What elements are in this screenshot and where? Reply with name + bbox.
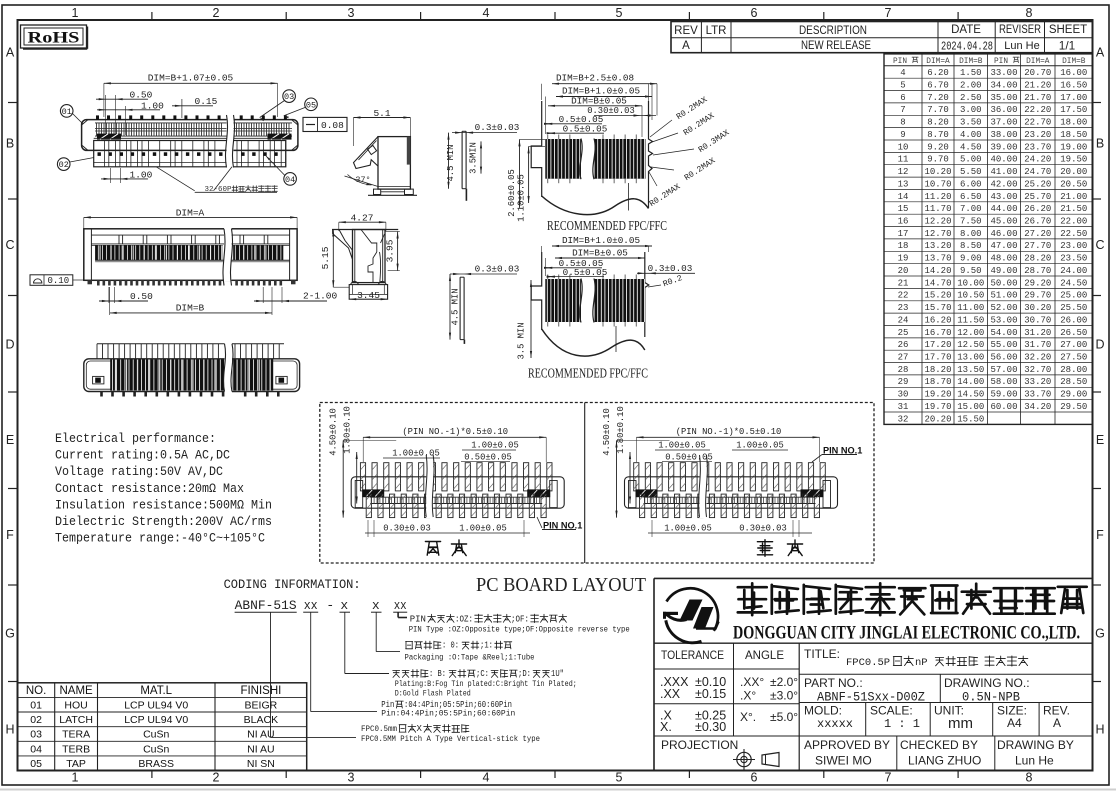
svg-text:18.20: 18.20 [924, 365, 951, 375]
svg-text:41.00: 41.00 [990, 167, 1017, 177]
svg-text:22.50: 22.50 [1060, 229, 1087, 239]
svg-text:15: 15 [898, 204, 909, 214]
svg-text:42.00: 42.00 [990, 179, 1017, 189]
svg-text:C: C [1095, 238, 1104, 252]
svg-text:BLACK: BLACK [244, 714, 278, 726]
svg-text:TERA: TERA [62, 729, 90, 741]
svg-text:29.20: 29.20 [1024, 278, 1051, 288]
svg-text:3.5MIN: 3.5MIN [469, 142, 479, 174]
svg-text:49.00: 49.00 [990, 266, 1017, 276]
svg-text:19.70: 19.70 [924, 402, 951, 412]
svg-text:27.20: 27.20 [1024, 229, 1051, 239]
svg-text:DIM=A: DIM=A [1026, 58, 1050, 66]
svg-text:20.00: 20.00 [1060, 167, 1087, 177]
svg-text:7.50: 7.50 [960, 217, 982, 227]
svg-text:9.70: 9.70 [927, 155, 949, 165]
svg-text:24.50: 24.50 [1060, 278, 1087, 288]
svg-text:11.70: 11.70 [924, 204, 951, 214]
svg-text:LCP UL94 V0: LCP UL94 V0 [124, 699, 188, 711]
svg-text:±3.0°: ±3.0° [770, 689, 798, 703]
svg-text:NI AU: NI AU [247, 743, 274, 755]
svg-text:13.70: 13.70 [924, 254, 951, 264]
svg-text:32.70: 32.70 [1024, 365, 1051, 375]
svg-text:SCALE:: SCALE: [870, 704, 913, 718]
svg-text:39.00: 39.00 [990, 142, 1017, 152]
svg-text:13.00: 13.00 [957, 353, 984, 363]
svg-text:33.00: 33.00 [990, 68, 1017, 78]
svg-text:Pin:04:4Pin;05:5Pin;60:60Pin: Pin:04:4Pin;05:5Pin;60:60Pin [381, 708, 515, 718]
svg-text:TERB: TERB [62, 743, 90, 755]
svg-text:46.00: 46.00 [990, 229, 1017, 239]
svg-text:4.50±0.10: 4.50±0.10 [602, 408, 612, 456]
svg-text:32-60P: 32-60P [205, 186, 233, 194]
svg-text:Electrical performance:: Electrical performance: [55, 432, 216, 446]
svg-text:0.50: 0.50 [130, 291, 153, 302]
svg-text:LIANG ZHUO: LIANG ZHUO [908, 754, 981, 768]
svg-text:CODING INFORMATION:: CODING INFORMATION: [224, 578, 361, 592]
svg-text:32: 32 [898, 414, 909, 424]
svg-text:PART NO.:: PART NO.: [804, 676, 863, 690]
svg-text:12: 12 [898, 167, 909, 177]
svg-text:1.80±0.10: 1.80±0.10 [616, 406, 626, 454]
svg-text:10: 10 [898, 142, 909, 152]
svg-text:1.80±0.10: 1.80±0.10 [343, 406, 353, 454]
svg-text:NAME: NAME [59, 685, 93, 697]
svg-text:PIN: PIN [994, 58, 1008, 66]
svg-text:xxxxx: xxxxx [817, 717, 853, 731]
svg-text:DONGGUAN CITY JINGLAI ELECTRON: DONGGUAN CITY JINGLAI ELECTRONIC CO.,LTD… [733, 623, 1080, 644]
svg-text:16.70: 16.70 [924, 328, 951, 338]
svg-text:NO.: NO. [26, 685, 46, 697]
svg-text:Current rating:0.5A AC,DC: Current rating:0.5A AC,DC [55, 449, 230, 463]
svg-text:18.50: 18.50 [1060, 130, 1087, 140]
svg-text:27.00: 27.00 [1060, 340, 1087, 350]
svg-text:10.70: 10.70 [924, 179, 951, 189]
svg-text:2.60±0.05: 2.60±0.05 [507, 169, 517, 217]
svg-text:04: 04 [285, 175, 295, 185]
svg-text:H: H [5, 723, 14, 737]
svg-text:HOU: HOU [64, 699, 87, 711]
svg-text:Temperature range:-40°C~+105°C: Temperature range:-40°C~+105°C [55, 532, 265, 546]
svg-text:PIN: PIN [893, 58, 907, 66]
svg-text:SIWEI MO: SIWEI MO [815, 754, 872, 768]
svg-text:29.70: 29.70 [1024, 291, 1051, 301]
svg-text:5.00: 5.00 [960, 155, 982, 165]
svg-text:1.00±0.05: 1.00±0.05 [658, 441, 706, 451]
svg-text:28.20: 28.20 [1024, 254, 1051, 264]
svg-text:Voltage rating:50V AV,DC: Voltage rating:50V AV,DC [55, 465, 223, 479]
svg-text:28.50: 28.50 [1060, 377, 1087, 387]
svg-text:43.00: 43.00 [990, 192, 1017, 202]
svg-text:28: 28 [898, 365, 909, 375]
svg-text:x: x [340, 598, 348, 613]
svg-text:0.50±0.05: 0.50±0.05 [665, 452, 713, 462]
svg-text:20.20: 20.20 [924, 414, 951, 424]
svg-text:26: 26 [898, 340, 909, 350]
svg-text:A: A [6, 46, 15, 60]
svg-text:20.50: 20.50 [1060, 179, 1087, 189]
svg-text:FPC0.5P: FPC0.5P [846, 657, 890, 669]
svg-text:: B:: : B: [429, 669, 446, 679]
svg-text:13.20: 13.20 [924, 241, 951, 251]
svg-text:CuSn: CuSn [143, 729, 169, 741]
svg-text:G: G [5, 627, 15, 641]
svg-text:26.50: 26.50 [1060, 328, 1087, 338]
svg-text:16.50: 16.50 [1060, 81, 1087, 91]
svg-text:Packaging :O:Tape &Reel;1:Tube: Packaging :O:Tape &Reel;1:Tube [405, 652, 535, 662]
svg-text:1.00: 1.00 [130, 169, 153, 180]
svg-text:±5.0°: ±5.0° [770, 710, 798, 724]
svg-text:27: 27 [898, 353, 909, 363]
svg-text:10.00: 10.00 [957, 278, 984, 288]
svg-text:35.00: 35.00 [990, 93, 1017, 103]
svg-text:.XX: .XX [660, 687, 681, 701]
svg-text:26.20: 26.20 [1024, 204, 1051, 214]
svg-text:1: 1 [72, 6, 79, 20]
svg-text:FPC0.5mm: FPC0.5mm [361, 724, 397, 734]
svg-text:27.50: 27.50 [1060, 353, 1087, 363]
svg-text:: 0:: : 0: [442, 641, 459, 651]
svg-text:48.00: 48.00 [990, 254, 1017, 264]
svg-text:59.00: 59.00 [990, 390, 1017, 400]
svg-text:PIN Type :OZ:Opposite type;OF:: PIN Type :OZ:Opposite type;OF:Opposite r… [409, 624, 630, 634]
svg-text:PIN: PIN [410, 615, 426, 625]
svg-text:DIM=A: DIM=A [926, 58, 950, 66]
svg-text:23: 23 [898, 303, 909, 313]
svg-text:0.08: 0.08 [321, 120, 344, 131]
svg-text:A: A [1096, 46, 1105, 60]
svg-text:05: 05 [30, 758, 42, 770]
svg-text:LCP UL94 V0: LCP UL94 V0 [124, 714, 188, 726]
svg-text:BRASS: BRASS [138, 758, 174, 770]
svg-text:26.00: 26.00 [1060, 315, 1087, 325]
svg-text:E: E [1096, 433, 1104, 447]
svg-text:6.50: 6.50 [960, 192, 982, 202]
svg-text:;OF:: ;OF: [511, 615, 529, 625]
svg-text:3: 3 [348, 6, 355, 20]
svg-text:8.20: 8.20 [927, 118, 949, 128]
svg-text:1.00±0.05: 1.00±0.05 [392, 448, 440, 458]
svg-text:CHECKED BY: CHECKED BY [900, 738, 978, 752]
svg-text:57.00: 57.00 [990, 365, 1017, 375]
svg-text:LATCH: LATCH [59, 714, 93, 726]
svg-text:8.50: 8.50 [960, 241, 982, 251]
svg-text:A4: A4 [1007, 716, 1022, 730]
svg-text:0.10: 0.10 [48, 276, 70, 286]
svg-text:SHEET: SHEET [1049, 24, 1087, 36]
svg-text:1.00±0.05: 1.00±0.05 [736, 441, 784, 451]
svg-text:4: 4 [483, 6, 490, 20]
svg-text:9.20: 9.20 [927, 142, 949, 152]
svg-text:9: 9 [900, 130, 905, 140]
svg-text:0.3±0.03: 0.3±0.03 [475, 264, 520, 275]
svg-text:47.00: 47.00 [990, 241, 1017, 251]
svg-text:nP: nP [915, 657, 928, 669]
svg-text:PIN NO.1: PIN NO.1 [543, 521, 582, 531]
svg-text:30.20: 30.20 [1024, 303, 1051, 313]
svg-text:25.20: 25.20 [1024, 179, 1051, 189]
svg-text:A: A [1053, 716, 1061, 730]
svg-text:22.00: 22.00 [1060, 217, 1087, 227]
svg-text:NEW RELEASE: NEW RELEASE [801, 40, 871, 52]
svg-text:APPROVED BY: APPROVED BY [804, 738, 890, 752]
svg-text:;C:: ;C: [476, 669, 489, 679]
svg-text:8: 8 [1026, 771, 1033, 785]
svg-text:±2.0°: ±2.0° [770, 675, 798, 689]
svg-text:6: 6 [751, 771, 758, 785]
svg-text:.X°: .X° [740, 689, 756, 703]
svg-text:X: X [417, 724, 423, 734]
svg-text:4.5 MIN: 4.5 MIN [446, 145, 456, 182]
svg-text:16.00: 16.00 [1060, 68, 1087, 78]
svg-text:36.00: 36.00 [990, 105, 1017, 115]
svg-text:20.70: 20.70 [1024, 68, 1051, 78]
svg-text:DIM=B+1.0±0.05: DIM=B+1.0±0.05 [562, 235, 640, 246]
svg-text:8: 8 [1026, 6, 1033, 20]
svg-text:Plating:B:Fog Tin plated:C:Bri: Plating:B:Fog Tin plated:C:Bright Tin Pl… [395, 679, 577, 689]
svg-text:3.45: 3.45 [357, 290, 380, 301]
svg-text:58.00: 58.00 [990, 377, 1017, 387]
svg-text:18: 18 [898, 241, 909, 251]
svg-text:27.70: 27.70 [1024, 241, 1051, 251]
svg-text:01: 01 [30, 699, 42, 711]
svg-text:4.5 MIN: 4.5 MIN [451, 289, 461, 326]
svg-text:14.20: 14.20 [924, 266, 951, 276]
svg-text:7.00: 7.00 [960, 204, 982, 214]
svg-text:BEIGR: BEIGR [245, 699, 278, 711]
svg-text:02: 02 [59, 160, 69, 170]
svg-text:0.3±0.03: 0.3±0.03 [475, 122, 520, 133]
svg-text:PC BOARD LAYOUT: PC BOARD LAYOUT [476, 574, 646, 596]
svg-text:1 : 1: 1 : 1 [884, 717, 920, 731]
svg-text:11: 11 [898, 155, 909, 165]
svg-text:56.00: 56.00 [990, 353, 1017, 363]
svg-text:3.95: 3.95 [385, 239, 396, 262]
svg-text:26.70: 26.70 [1024, 217, 1051, 227]
svg-text:19.50: 19.50 [1060, 155, 1087, 165]
svg-text:25.00: 25.00 [1060, 291, 1087, 301]
svg-text:33.70: 33.70 [1024, 390, 1051, 400]
svg-text:21.70: 21.70 [1024, 93, 1051, 103]
svg-text:51.00: 51.00 [990, 291, 1017, 301]
svg-text:X°.: X°. [740, 710, 756, 724]
svg-text:7.70: 7.70 [927, 105, 949, 115]
svg-text:1.00±0.05: 1.00±0.05 [664, 523, 712, 533]
svg-text:0.30±0.03: 0.30±0.03 [383, 523, 431, 533]
svg-text:DATE: DATE [951, 24, 981, 36]
svg-text:ABNF-51S: ABNF-51S [235, 598, 297, 613]
svg-text:2: 2 [213, 6, 220, 20]
svg-text:4: 4 [483, 771, 490, 785]
svg-text:D:Gold Flash Plated: D:Gold Flash Plated [395, 689, 471, 699]
svg-text:30: 30 [898, 390, 909, 400]
svg-text:18.00: 18.00 [1060, 118, 1087, 128]
svg-text:6.20: 6.20 [927, 68, 949, 78]
svg-text:DRAWING BY: DRAWING BY [997, 738, 1074, 752]
svg-text:RECOMMENDED FPC/FFC: RECOMMENDED FPC/FFC [547, 218, 667, 233]
svg-text:1.00: 1.00 [141, 100, 164, 111]
svg-text:20: 20 [898, 266, 909, 276]
svg-text:±0.15: ±0.15 [695, 687, 726, 701]
svg-text:24: 24 [898, 315, 909, 325]
svg-text:TITLE:: TITLE: [804, 647, 840, 661]
svg-text:PROJECTION: PROJECTION [661, 738, 738, 752]
svg-text:25.50: 25.50 [1060, 303, 1087, 313]
svg-text:55.00: 55.00 [990, 340, 1017, 350]
svg-text:10.20: 10.20 [924, 167, 951, 177]
svg-text:22: 22 [898, 291, 909, 301]
svg-text:29.00: 29.00 [1060, 390, 1087, 400]
svg-text:19: 19 [898, 254, 909, 264]
svg-text:17.20: 17.20 [924, 340, 951, 350]
svg-text:2.50: 2.50 [960, 93, 982, 103]
svg-text:32.20: 32.20 [1024, 353, 1051, 363]
svg-text:B: B [1096, 137, 1104, 151]
svg-text:5: 5 [616, 6, 623, 20]
svg-text:37.00: 37.00 [990, 118, 1017, 128]
svg-text:30.70: 30.70 [1024, 315, 1051, 325]
svg-text:DIM=B+1.07±0.05: DIM=B+1.07±0.05 [148, 73, 234, 84]
svg-text:7: 7 [885, 771, 892, 785]
svg-text:2-1.00: 2-1.00 [303, 291, 338, 302]
svg-text:F: F [6, 528, 14, 542]
svg-text:40.00: 40.00 [990, 155, 1017, 165]
svg-text:TAP: TAP [66, 758, 86, 770]
svg-text:Contact resistance:20mΩ Max: Contact resistance:20mΩ Max [55, 482, 244, 496]
svg-text:5: 5 [616, 771, 623, 785]
svg-text:1/1: 1/1 [1059, 39, 1075, 53]
svg-text:5.50: 5.50 [960, 167, 982, 177]
svg-text:2024.04.28: 2024.04.28 [941, 40, 993, 54]
svg-text:33.20: 33.20 [1024, 377, 1051, 387]
svg-text:DIM=B: DIM=B [1062, 58, 1086, 66]
svg-text:16.20: 16.20 [924, 315, 951, 325]
svg-text:A: A [682, 40, 690, 52]
svg-text:4.00: 4.00 [960, 130, 982, 140]
svg-text:0.30±0.03: 0.30±0.03 [739, 523, 787, 533]
svg-text:8: 8 [900, 118, 905, 128]
svg-text:15.00: 15.00 [957, 402, 984, 412]
svg-text:Lun He: Lun He [1004, 40, 1039, 52]
svg-text:Insulation resistance:500MΩ Mi: Insulation resistance:500MΩ Min [55, 498, 272, 512]
svg-text:RoHS: RoHS [28, 30, 80, 47]
svg-text:6: 6 [751, 6, 758, 20]
svg-text:1.00±0.05: 1.00±0.05 [471, 441, 519, 451]
svg-text:21.20: 21.20 [1024, 81, 1051, 91]
svg-text:0.15: 0.15 [195, 96, 218, 107]
svg-text:7.20: 7.20 [927, 93, 949, 103]
svg-text:24.00: 24.00 [1060, 266, 1087, 276]
svg-text:0.5N-NPB: 0.5N-NPB [962, 690, 1020, 705]
svg-text:23.50: 23.50 [1060, 254, 1087, 264]
svg-text:03: 03 [284, 92, 294, 102]
svg-text:31.70: 31.70 [1024, 340, 1051, 350]
svg-text::OZ:: :OZ: [455, 615, 473, 625]
svg-text:2.00: 2.00 [960, 81, 982, 91]
svg-text:23.20: 23.20 [1024, 130, 1051, 140]
svg-text:ABNF-51Sxx-D00Z: ABNF-51Sxx-D00Z [817, 690, 925, 705]
svg-text:25.70: 25.70 [1024, 192, 1051, 202]
svg-text:23.70: 23.70 [1024, 142, 1051, 152]
svg-text:54.00: 54.00 [990, 328, 1017, 338]
svg-text:x: x [372, 598, 380, 613]
svg-text:19.00: 19.00 [1060, 142, 1087, 152]
svg-text:NI SN: NI SN [247, 758, 275, 770]
svg-text:8.70: 8.70 [927, 130, 949, 140]
svg-text:14.70: 14.70 [924, 278, 951, 288]
svg-text:8.00: 8.00 [960, 229, 982, 239]
svg-text:D: D [1095, 338, 1104, 352]
svg-text:11.20: 11.20 [924, 192, 951, 202]
svg-text:31: 31 [898, 402, 909, 412]
svg-text:0.3±0.03: 0.3±0.03 [648, 263, 693, 274]
svg-text:05: 05 [306, 100, 316, 110]
svg-text:5: 5 [900, 81, 905, 91]
svg-text:4.27: 4.27 [351, 212, 374, 223]
svg-text:1.10±0.05: 1.10±0.05 [517, 174, 527, 222]
svg-text:3.5 MIN: 3.5 MIN [517, 323, 527, 360]
svg-text:53.00: 53.00 [990, 315, 1017, 325]
svg-text:4: 4 [900, 68, 905, 78]
svg-text:DRAWING NO.:: DRAWING NO.: [944, 676, 1030, 690]
svg-text:1.50: 1.50 [960, 68, 982, 78]
svg-text:34.00: 34.00 [990, 81, 1017, 91]
svg-text:H: H [1095, 723, 1104, 737]
svg-text:24.20: 24.20 [1024, 155, 1051, 165]
svg-text:14.50: 14.50 [957, 390, 984, 400]
svg-text:Dielectric Strength:200V AC/rm: Dielectric Strength:200V AC/rms [55, 515, 272, 529]
svg-text:17: 17 [898, 229, 909, 239]
svg-text:xx: xx [304, 598, 318, 613]
svg-text:;D:: ;D: [518, 669, 531, 679]
svg-text:29.50: 29.50 [1060, 402, 1087, 412]
svg-text:38.00: 38.00 [990, 130, 1017, 140]
svg-text:DIM=B: DIM=B [176, 302, 205, 313]
svg-text:12.00: 12.00 [957, 328, 984, 338]
svg-text:28.70: 28.70 [1024, 266, 1051, 276]
svg-text:02: 02 [30, 714, 42, 726]
svg-text:MOLD:: MOLD: [804, 704, 842, 718]
svg-text:7: 7 [900, 105, 905, 115]
svg-text:3: 3 [348, 771, 355, 785]
svg-text:22.20: 22.20 [1024, 105, 1051, 115]
svg-text:12.50: 12.50 [957, 340, 984, 350]
svg-text:ANGLE: ANGLE [745, 650, 784, 662]
svg-text:4.50±0.10: 4.50±0.10 [329, 408, 339, 456]
svg-text:12.20: 12.20 [924, 217, 951, 227]
svg-text:13.50: 13.50 [957, 365, 984, 375]
svg-text:NI AU: NI AU [247, 729, 274, 741]
svg-text:RECOMMENDED FPC/FFC: RECOMMENDED FPC/FFC [528, 366, 648, 381]
svg-text:44.00: 44.00 [990, 204, 1017, 214]
svg-text:E: E [6, 433, 14, 447]
svg-text:D: D [5, 338, 14, 352]
svg-text:29: 29 [898, 377, 909, 387]
svg-text:15.50: 15.50 [957, 414, 984, 424]
svg-text:2: 2 [213, 771, 220, 785]
svg-text:(PIN NO.-1)*0.5±0.10: (PIN NO.-1)*0.5±0.10 [402, 427, 508, 437]
svg-text:CuSn: CuSn [143, 743, 169, 755]
svg-text:REVISER: REVISER [999, 24, 1041, 36]
svg-text:X.: X. [660, 720, 672, 734]
svg-text:16: 16 [898, 217, 909, 227]
svg-text:3.50: 3.50 [960, 118, 982, 128]
svg-text:9.50: 9.50 [960, 266, 982, 276]
svg-text:3.00: 3.00 [960, 105, 982, 115]
svg-text:60.00: 60.00 [990, 402, 1017, 412]
svg-text:23.00: 23.00 [1060, 241, 1087, 251]
svg-text:21.00: 21.00 [1060, 192, 1087, 202]
